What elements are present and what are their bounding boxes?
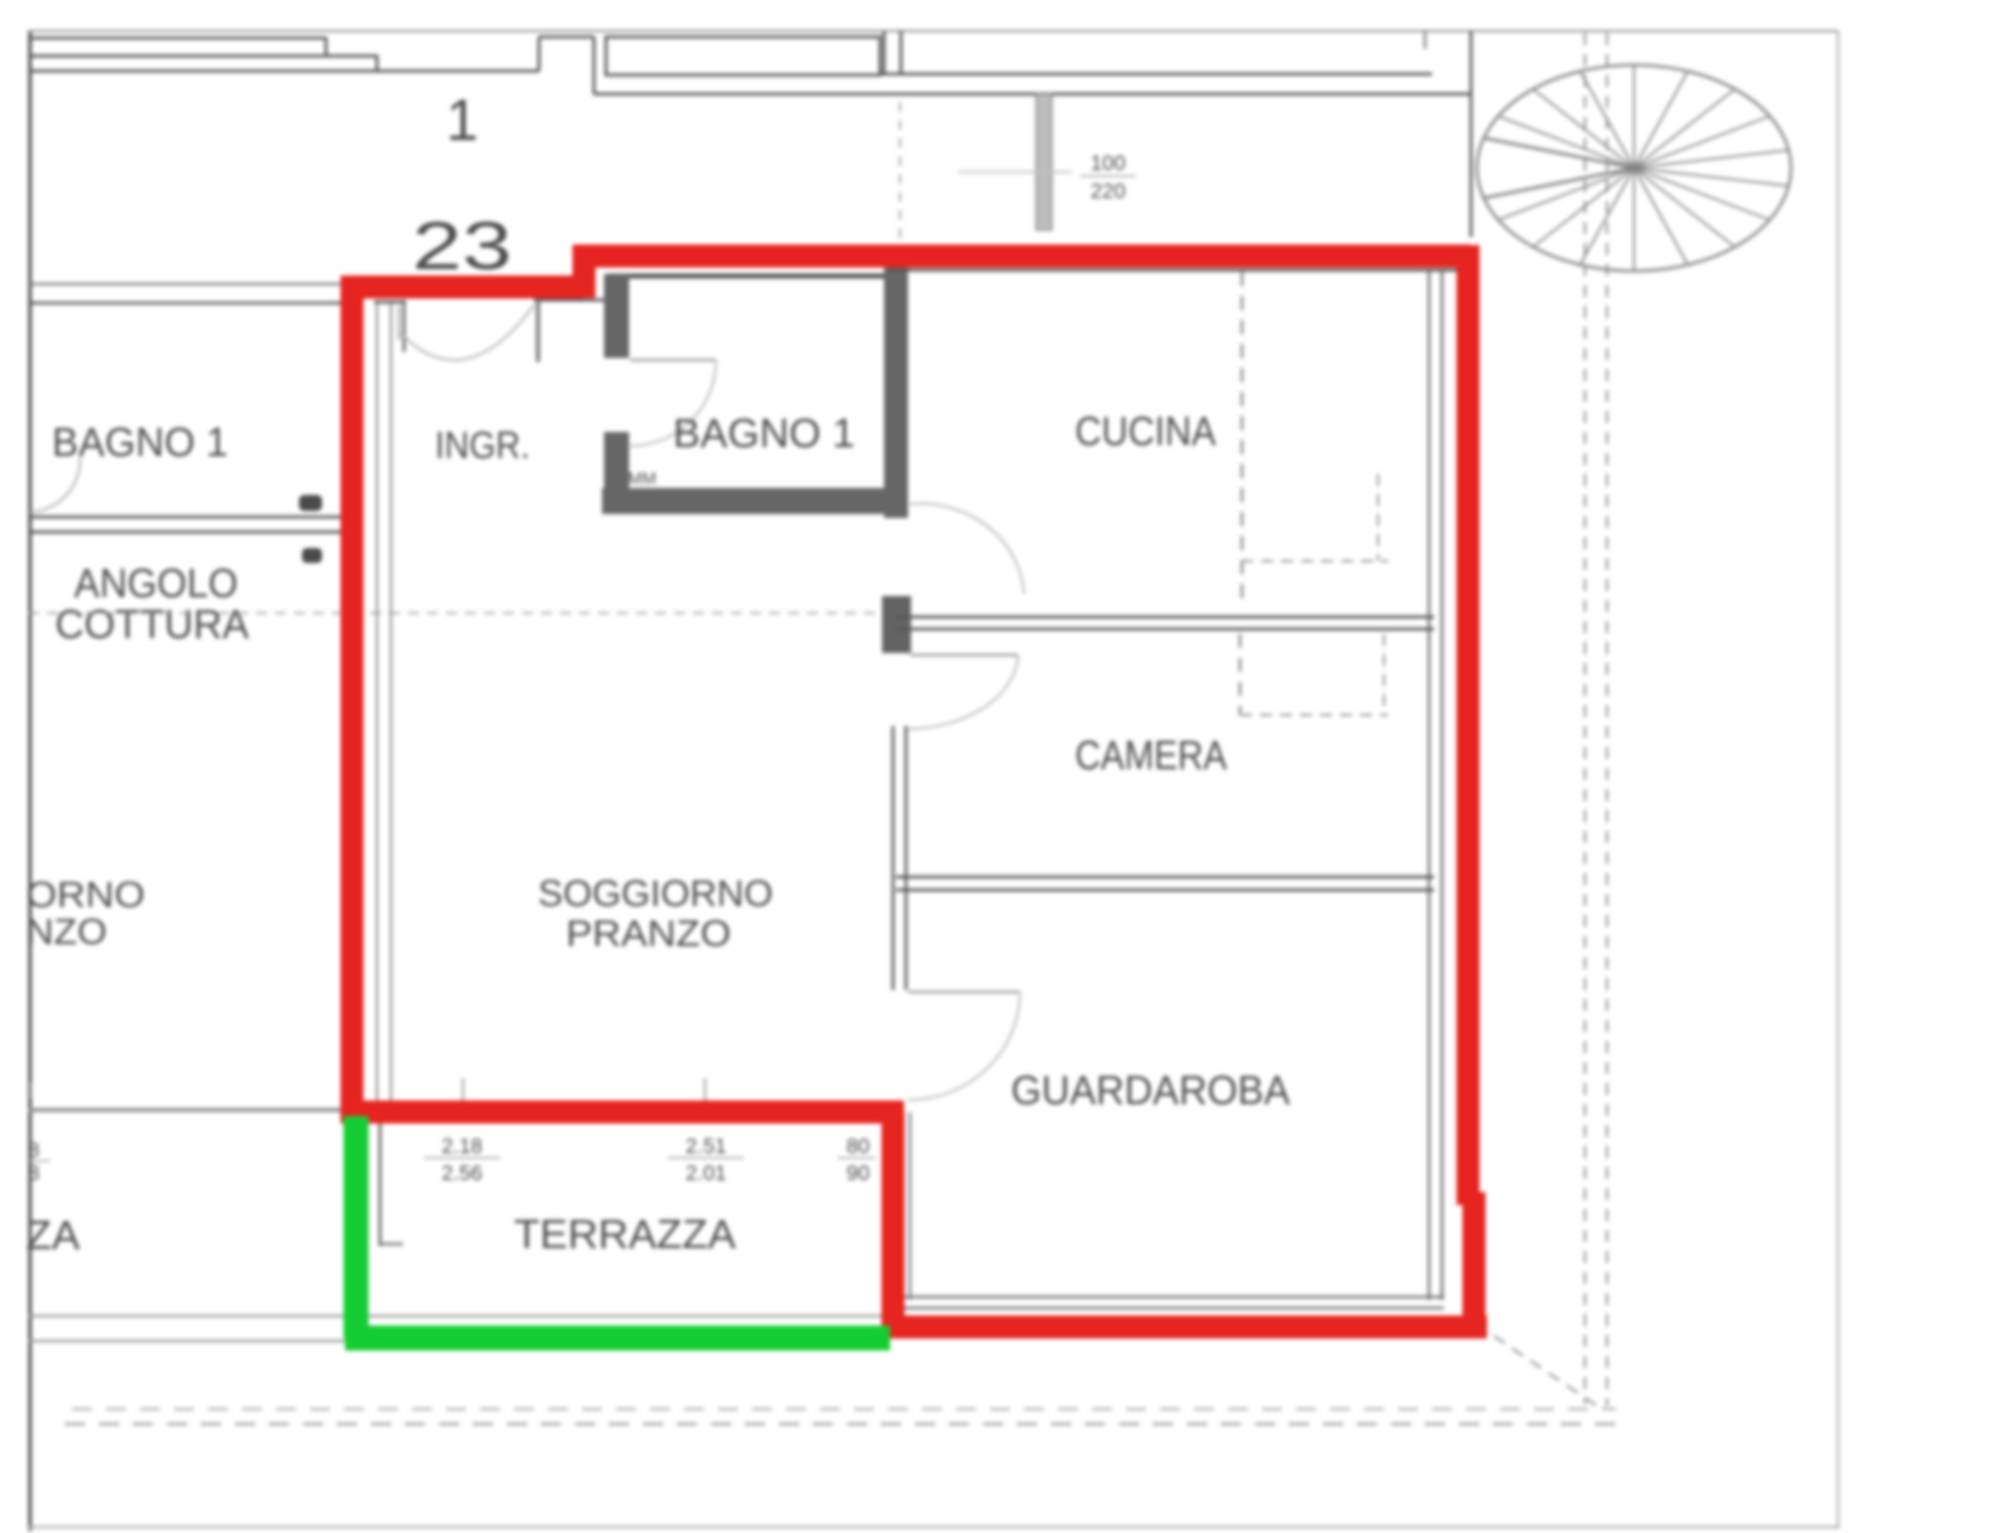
- svg-text:2.56: 2.56: [442, 1162, 483, 1185]
- svg-text:ANGOLO: ANGOLO: [74, 560, 238, 606]
- svg-text:ZA: ZA: [26, 1212, 81, 1258]
- svg-text:BAGNO 1: BAGNO 1: [673, 410, 855, 456]
- svg-text:220: 220: [1090, 180, 1125, 203]
- svg-text:COTTURA: COTTURA: [55, 601, 250, 647]
- svg-text:80: 80: [846, 1135, 869, 1158]
- svg-text:TERRAZZA: TERRAZZA: [514, 1211, 737, 1257]
- svg-text:SOGGIORNO: SOGGIORNO: [538, 873, 773, 914]
- svg-text:1: 1: [446, 88, 478, 153]
- svg-text:8: 8: [28, 1162, 40, 1185]
- svg-text:23: 23: [412, 208, 512, 284]
- svg-text:GUARDAROBA: GUARDAROBA: [1011, 1067, 1291, 1113]
- svg-text:90: 90: [846, 1162, 869, 1185]
- svg-text:2.01: 2.01: [686, 1162, 727, 1185]
- svg-text:2.51: 2.51: [686, 1135, 727, 1158]
- svg-text:BAGNO 1: BAGNO 1: [52, 419, 228, 465]
- svg-text:PRANZO: PRANZO: [566, 913, 731, 954]
- svg-text:INGR.: INGR.: [435, 425, 530, 467]
- svg-text:ORNO: ORNO: [26, 874, 145, 915]
- svg-text:8: 8: [28, 1139, 40, 1162]
- svg-text:MM: MM: [628, 469, 656, 488]
- svg-text:2.18: 2.18: [442, 1135, 483, 1158]
- svg-text:100: 100: [1090, 152, 1125, 175]
- svg-text:NZO: NZO: [26, 911, 107, 952]
- svg-text:CUCINA: CUCINA: [1075, 408, 1217, 454]
- svg-text:CAMERA: CAMERA: [1075, 732, 1228, 778]
